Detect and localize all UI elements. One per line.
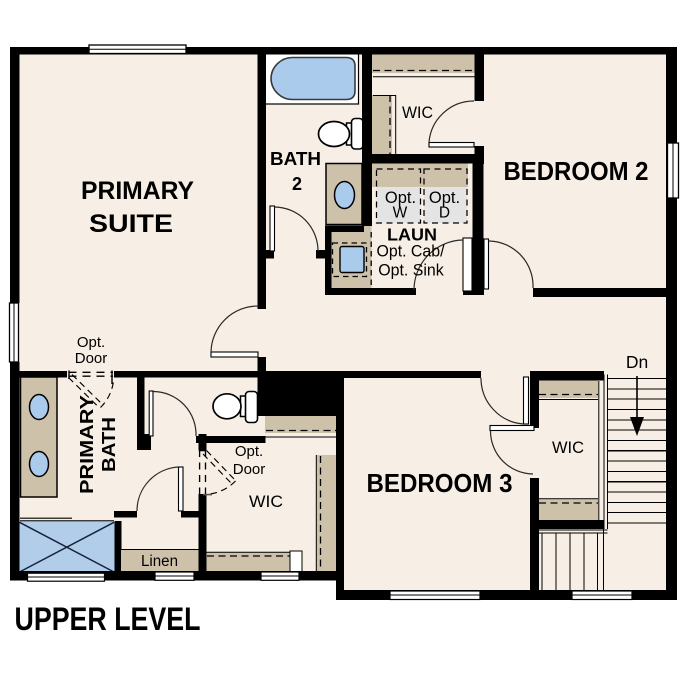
svg-text:Linen: Linen (141, 553, 178, 570)
svg-text:SUITE: SUITE (89, 210, 173, 238)
svg-text:2: 2 (292, 174, 302, 194)
svg-text:W: W (393, 205, 408, 222)
svg-text:Opt. Sink: Opt. Sink (378, 261, 444, 280)
svg-text:WIC: WIC (402, 104, 433, 122)
svg-text:BEDROOM 3: BEDROOM 3 (367, 468, 513, 498)
svg-text:BATH: BATH (270, 149, 321, 169)
svg-text:D: D (439, 205, 450, 222)
svg-text:Door: Door (75, 350, 108, 367)
svg-text:Door: Door (233, 461, 266, 478)
svg-text:BEDROOM 2: BEDROOM 2 (504, 156, 649, 186)
svg-text:WIC: WIC (249, 492, 283, 511)
svg-text:Dn: Dn (626, 352, 648, 372)
svg-text:Opt.: Opt. (235, 443, 263, 460)
svg-text:WIC: WIC (552, 438, 584, 457)
svg-text:Opt.: Opt. (77, 334, 105, 351)
svg-text:BATH: BATH (99, 417, 119, 472)
svg-text:PRIMARY: PRIMARY (81, 177, 194, 205)
svg-text:PRIMARY: PRIMARY (77, 395, 97, 494)
svg-text:Opt. Cab/: Opt. Cab/ (377, 242, 445, 261)
svg-text:UPPER LEVEL: UPPER LEVEL (15, 601, 201, 637)
